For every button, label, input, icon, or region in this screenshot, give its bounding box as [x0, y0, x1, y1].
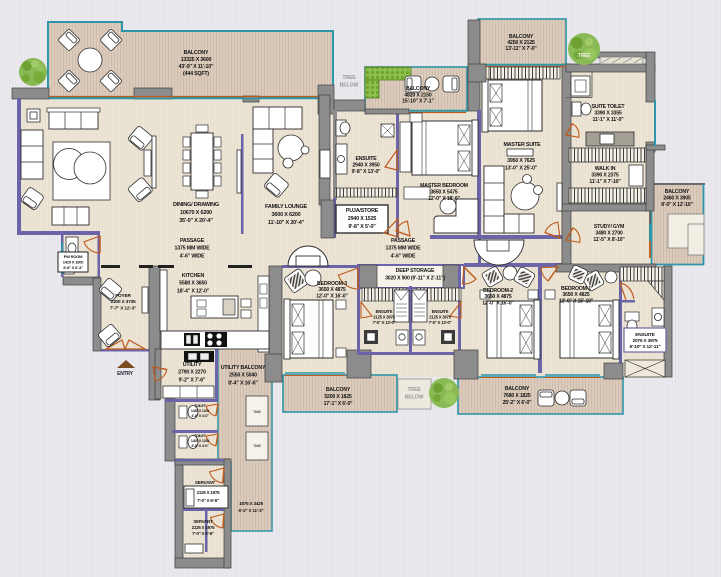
- svg-text:BALCONY2460 X 39058'-0" X 12'-: BALCONY2460 X 39058'-0" X 12'-10": [661, 189, 693, 208]
- svg-text:BEDROOM-23650 X 487512'-0" X 1: BEDROOM-23650 X 487512'-0" X 16'-0": [482, 288, 514, 306]
- svg-text:TANK: TANK: [253, 444, 262, 448]
- svg-text:BEDROOM-33650 X 487512'-0" X 1: BEDROOM-33650 X 487512'-0" X 16'-0": [316, 281, 348, 299]
- svg-text:ENSUITE2125 X 39757'-0" X 13'-: ENSUITE2125 X 39757'-0" X 13'-0": [373, 309, 396, 325]
- svg-text:BALCONY5200 X 182517'-1" X 6'-: BALCONY5200 X 182517'-1" X 6'-0": [324, 387, 354, 407]
- svg-text:BEDROOM-13650 X 482512'-0" X 1: BEDROOM-13650 X 482512'-0" X 15'-10": [559, 286, 594, 304]
- svg-text:3950 X 762513'-0" X 25'-0": 3950 X 762513'-0" X 25'-0": [505, 158, 538, 172]
- svg-text:TANK: TANK: [253, 410, 262, 414]
- svg-text:SERVANT2125 X 19757'-0" X 6'-6: SERVANT2125 X 19757'-0" X 6'-6": [192, 519, 215, 536]
- svg-text:SUITE TOILET3390 X 335511'-1": SUITE TOILET3390 X 335511'-1" X 11'-0": [592, 104, 626, 123]
- svg-text:BALCONY7680 X 182525'-2" X 6'-: BALCONY7680 X 182525'-2" X 6'-0": [503, 386, 533, 406]
- svg-text:STUDY/ GYM3480 X 270011'-5" X: STUDY/ GYM3480 X 270011'-5" X 8'-10": [593, 224, 625, 243]
- svg-text:BALCONY4250 X 212513'-11" X 7': BALCONY4250 X 212513'-11" X 7'-0": [505, 34, 537, 52]
- svg-text:PW ROOM1425 X 19005'-8" X 6'-3: PW ROOM1425 X 19005'-8" X 6'-3": [63, 254, 84, 270]
- svg-text:PUJA/STORE2940 X 15259'-8" X 5: PUJA/STORE2940 X 15259'-8" X 5'-0": [346, 208, 379, 230]
- svg-text:SERVANT: SERVANT: [195, 480, 216, 485]
- svg-text:ENTRY: ENTRY: [117, 371, 134, 377]
- svg-text:BALCONY4820 X 215015'-10" X 7': BALCONY4820 X 215015'-10" X 7'-1": [402, 86, 434, 105]
- svg-text:MASTER SUITE: MASTER SUITE: [503, 142, 541, 148]
- svg-text:ENSUITE2125 X 39757'-0" X 13'-: ENSUITE2125 X 39757'-0" X 13'-0": [429, 309, 452, 325]
- svg-text:TREE: TREE: [578, 53, 591, 59]
